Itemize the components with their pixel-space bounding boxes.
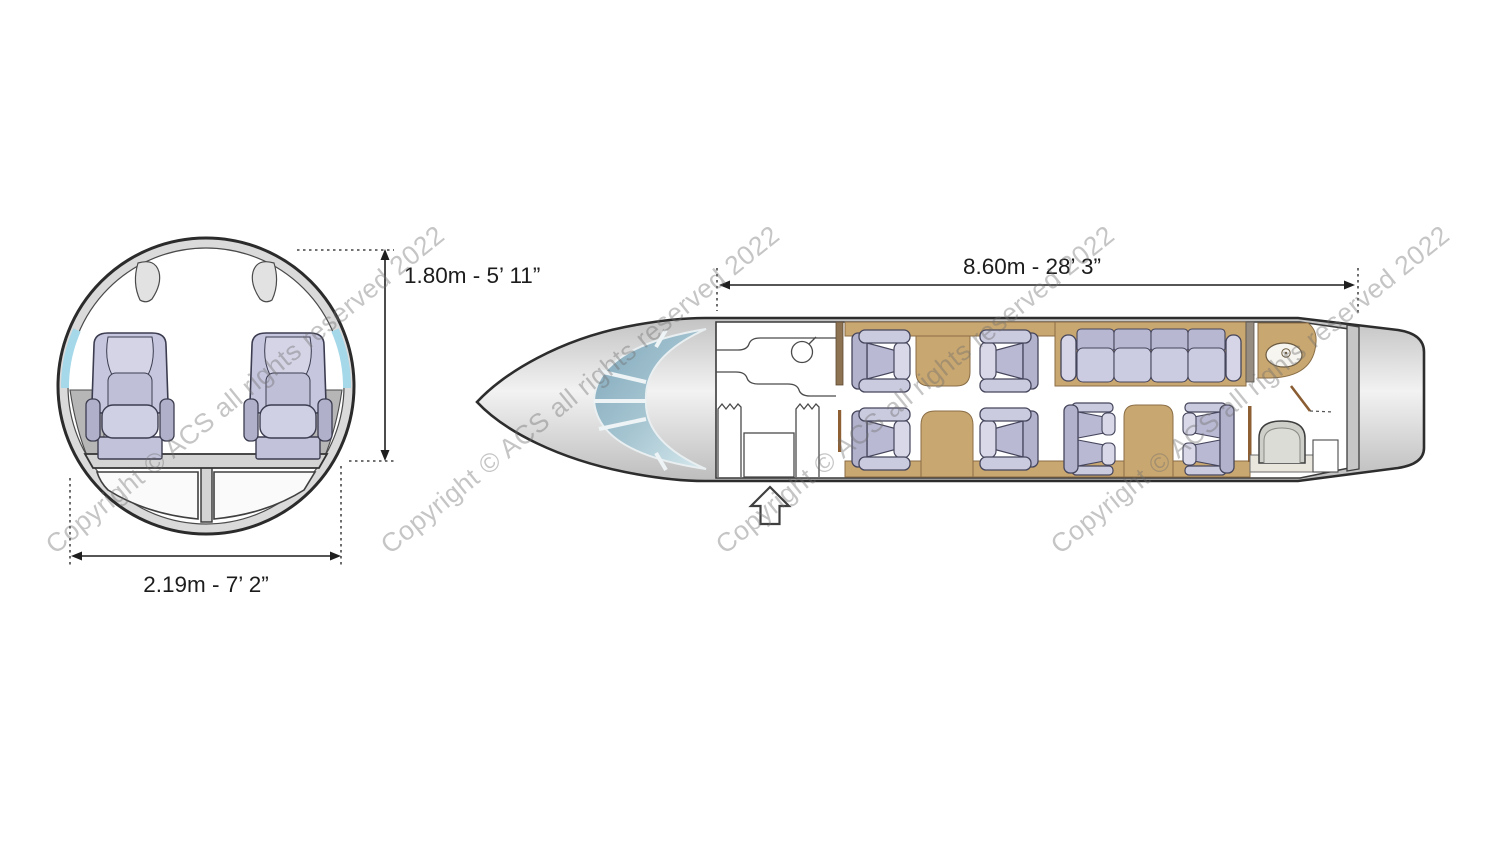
floor-center-support: [201, 466, 212, 522]
single-seat-4: [980, 408, 1038, 470]
arrow-right-icon: [330, 552, 341, 561]
club-table-bottom: [921, 411, 973, 477]
arrow-down-icon: [381, 450, 390, 461]
divan: [1061, 329, 1241, 382]
partition-lavatory-bottom: [1248, 406, 1252, 462]
galley-sink-icon: [792, 342, 813, 363]
cabin-diagram-page: 1.80m - 5’ 11” 2.19m - 7’ 2”: [0, 0, 1500, 844]
cross-section: 1.80m - 5’ 11” 2.19m - 7’ 2”: [58, 238, 540, 597]
divan-cushions: [1077, 348, 1225, 382]
cabin-height-label: 1.80m - 5’ 11”: [404, 263, 540, 288]
cabin-diagram: 1.80m - 5’ 11” 2.19m - 7’ 2”: [0, 0, 1500, 844]
arrow-left-icon: [71, 552, 82, 561]
divan-armrest-left: [1061, 335, 1076, 381]
cabin-width-label: 2.19m - 7’ 2”: [143, 572, 268, 597]
toilet-seat: [1264, 428, 1300, 463]
cabin-entry-door: [744, 433, 794, 477]
curtain-left: [718, 404, 741, 477]
lavatory-step: [1313, 440, 1338, 472]
floor-plan: 8.60m - 28’ 3”: [477, 254, 1424, 524]
divan-armrest-right: [1226, 335, 1241, 381]
aft-bulkhead: [1347, 325, 1359, 471]
partition-forward-top: [836, 322, 843, 385]
